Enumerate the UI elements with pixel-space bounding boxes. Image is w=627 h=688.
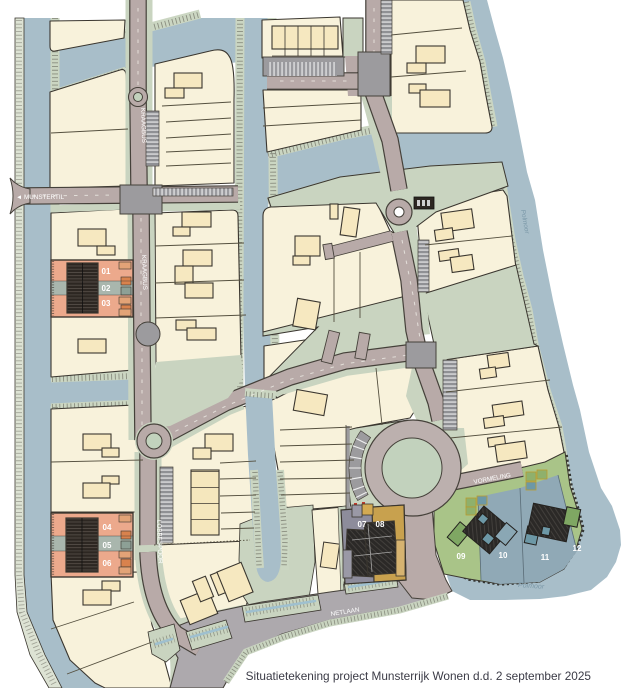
svg-text:KRAAGBUS: KRAAGBUS (140, 255, 148, 290)
svg-text:02: 02 (102, 284, 111, 293)
svg-text:11: 11 (541, 553, 550, 562)
svg-text:04: 04 (103, 523, 112, 532)
svg-text:09: 09 (457, 552, 466, 561)
svg-text:05: 05 (103, 541, 112, 550)
svg-text:06: 06 (103, 559, 112, 568)
svg-text:◄ MUNSTERTIL: ◄ MUNSTERTIL (16, 194, 65, 201)
svg-text:01: 01 (102, 267, 111, 276)
svg-text:10: 10 (499, 551, 508, 560)
svg-text:03: 03 (102, 299, 111, 308)
svg-text:08: 08 (376, 520, 385, 529)
svg-text:KRAAGBUS: KRAAGBUS (139, 108, 147, 143)
svg-text:07: 07 (358, 520, 367, 529)
svg-text:Situatietekening project Munst: Situatietekening project Munsterrijk Won… (246, 669, 592, 683)
svg-text:12: 12 (573, 544, 582, 553)
